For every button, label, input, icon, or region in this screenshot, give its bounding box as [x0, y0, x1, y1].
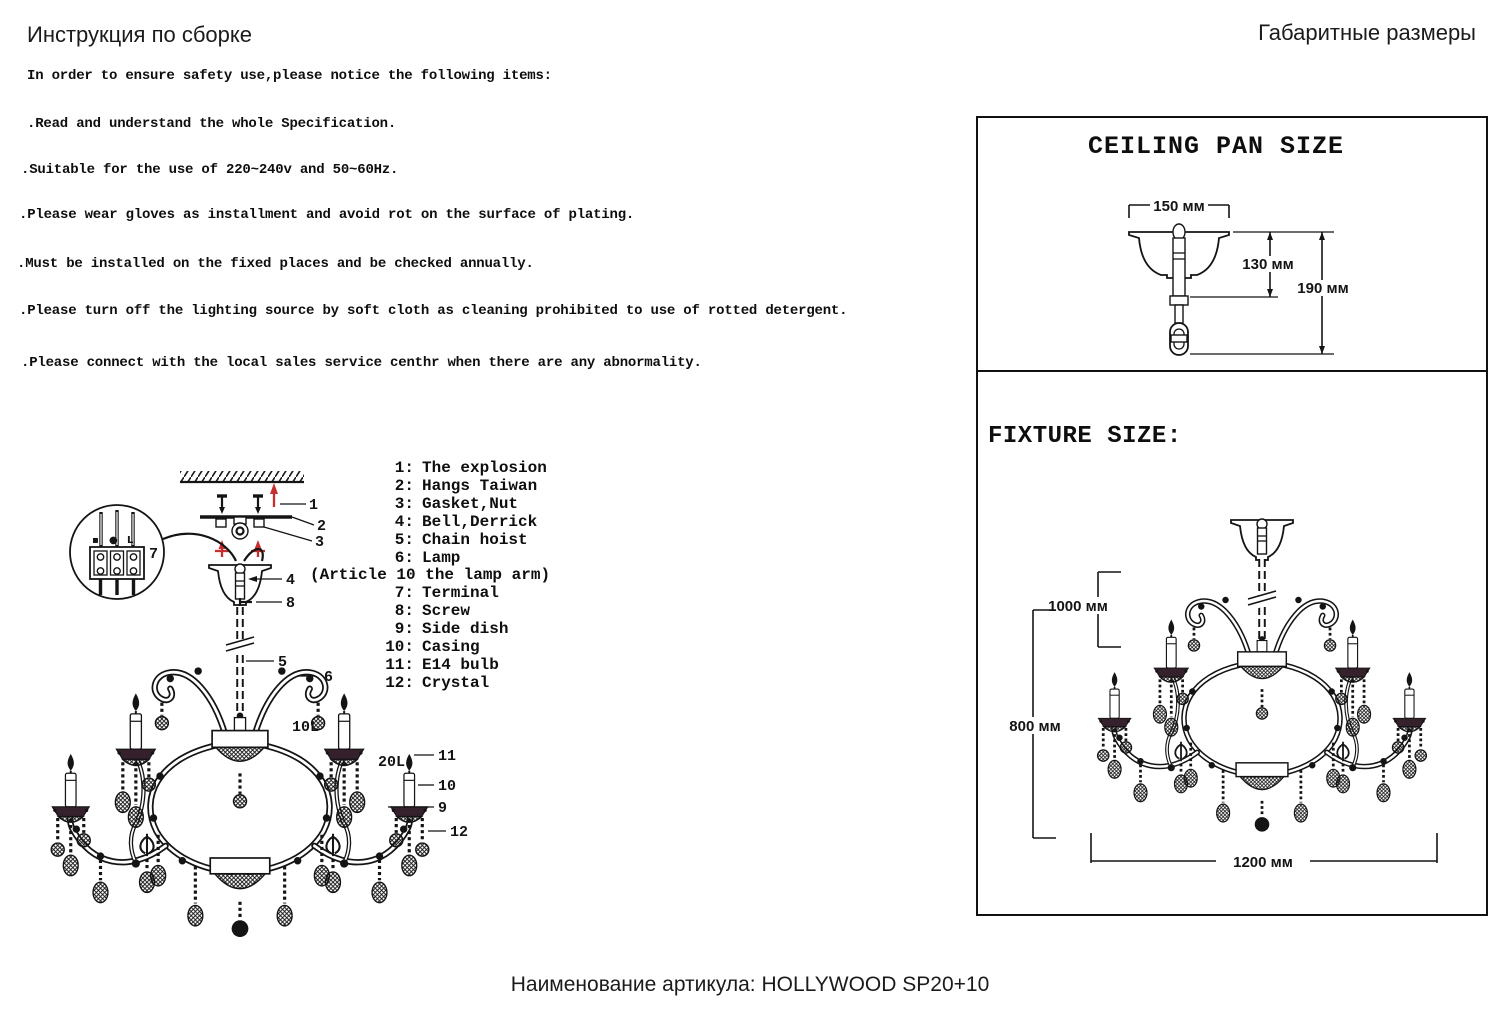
terminal-inset: ▪ ● L 7: [70, 505, 164, 599]
dim-label-130: 130 мм: [1242, 256, 1293, 273]
mount-direction-arrow: [270, 483, 278, 507]
page-title-assembly: Инструкция по сборке: [27, 22, 252, 48]
supply-wire: [163, 534, 236, 561]
tier-label-20l: 20L: [378, 754, 405, 771]
callout-3: 3: [315, 534, 324, 551]
dim-label-150: 150 мм: [1153, 198, 1204, 215]
safety-item: .Must be installed on the fixed places a…: [17, 256, 534, 272]
suspension-chain: [223, 607, 257, 712]
dimension-800: 800 мм: [1004, 610, 1066, 838]
safety-item: .Suitable for the use of 220~240v and 50…: [21, 162, 398, 178]
terminal-mark-n: ▪: [92, 535, 99, 546]
mounting-bracket: [200, 517, 292, 539]
ceiling-pan-canopy: [1129, 224, 1229, 355]
terminal-mark-l: L: [127, 535, 134, 546]
article-name: Наименование артикула: HOLLYWOOD SP20+10: [0, 973, 1500, 997]
terminal-mark-earth: ●: [109, 535, 118, 546]
fixture-size-title: FIXTURE SIZE:: [988, 423, 1182, 450]
ceiling-pan-title: CEILING PAN SIZE: [1088, 132, 1344, 161]
callout-10: 10: [438, 778, 456, 795]
panel-divider: [976, 370, 1488, 372]
tier-label-10l: 10L: [292, 719, 319, 736]
safety-item: .Read and understand the whole Specifica…: [27, 116, 396, 132]
dim-label-800: 800 мм: [1009, 718, 1060, 735]
callout-7: 7: [149, 546, 158, 563]
callout-1: 1: [309, 497, 318, 514]
ceiling-pan-drawing: 150 мм 130 мм 190 мм: [1080, 185, 1390, 370]
dim-label-1200: 1200 мм: [1233, 854, 1293, 871]
callout-12: 12: [450, 824, 468, 841]
dimension-150: 150 мм: [1129, 198, 1229, 218]
safety-item: .Please turn off the lighting source by …: [19, 303, 847, 319]
callout-2: 2: [317, 518, 326, 535]
dim-label-190: 190 мм: [1297, 280, 1348, 297]
mounting-screw-icon: [253, 496, 263, 514]
safety-intro: In order to ensure safety use,please not…: [27, 68, 552, 84]
dim-label-1000: 1000 мм: [1048, 598, 1108, 615]
assembly-diagram-drawing: 1 2 3 ▪ ● L 7: [30, 455, 490, 935]
instruction-sheet: { "header": { "assembly_title": "Инструк…: [0, 0, 1500, 1034]
fixture-canopy: [1231, 519, 1293, 560]
page-title-dimensions: Габаритные размеры: [1258, 20, 1476, 46]
fixture-size-drawing: 1000 мм 800 мм 1200 мм: [980, 495, 1485, 905]
callout-8: 8: [286, 595, 295, 612]
safety-item: .Please wear gloves as installment and a…: [19, 207, 634, 223]
mounting-screw-icon: [217, 496, 227, 514]
ceiling-hatch: [180, 471, 304, 482]
safety-item: .Please connect with the local sales ser…: [21, 355, 702, 371]
callout-4: 4: [286, 572, 295, 589]
dimension-1200: 1200 мм: [1091, 833, 1437, 871]
callout-11: 11: [438, 748, 456, 765]
callout-9: 9: [438, 800, 447, 817]
fixture-chain: [1245, 559, 1279, 645]
